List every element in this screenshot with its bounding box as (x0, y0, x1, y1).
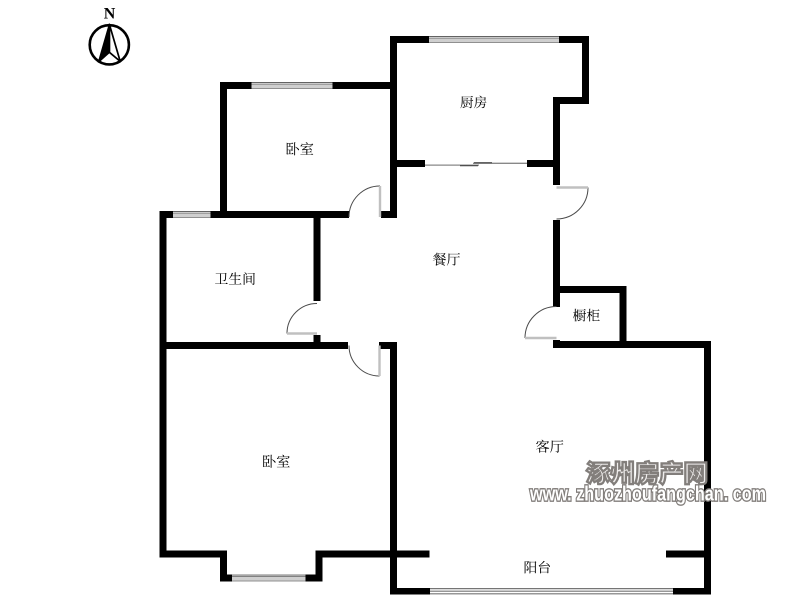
svg-text:www. zhuozhoufangchan. com: www. zhuozhoufangchan. com (529, 483, 766, 506)
svg-text:N: N (104, 6, 116, 23)
